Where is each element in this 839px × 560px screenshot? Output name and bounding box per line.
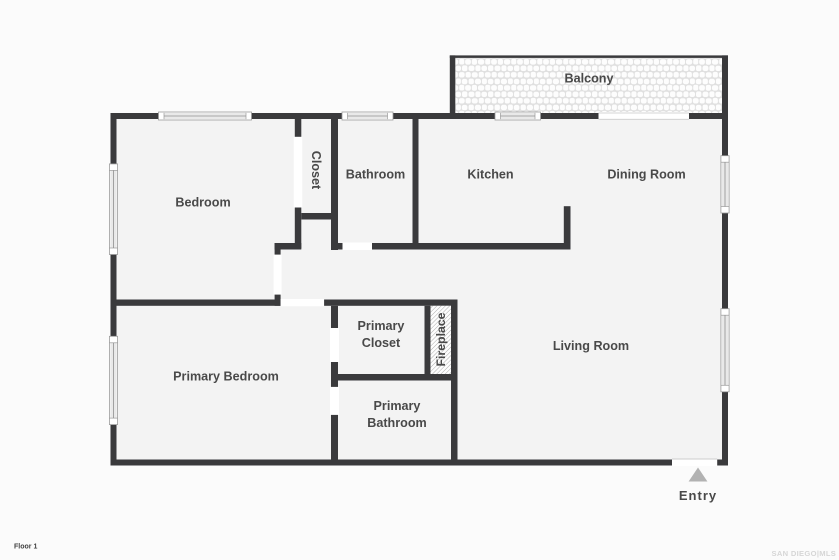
svg-text:Dining Room: Dining Room bbox=[607, 167, 685, 181]
svg-text:Entry: Entry bbox=[679, 488, 717, 503]
svg-text:Primary: Primary bbox=[374, 399, 421, 413]
svg-text:Bathroom: Bathroom bbox=[346, 167, 405, 181]
svg-text:Primary: Primary bbox=[358, 319, 405, 333]
svg-text:SAN DIEGO|MLS: SAN DIEGO|MLS bbox=[772, 549, 837, 558]
svg-text:Bedroom: Bedroom bbox=[175, 195, 230, 209]
svg-text:Primary Bedroom: Primary Bedroom bbox=[173, 369, 279, 383]
svg-text:Fireplace: Fireplace bbox=[434, 312, 448, 366]
svg-text:Floor 1: Floor 1 bbox=[14, 544, 37, 551]
svg-text:Kitchen: Kitchen bbox=[467, 167, 513, 181]
svg-text:Living Room: Living Room bbox=[553, 339, 629, 353]
svg-text:Bathroom: Bathroom bbox=[367, 416, 426, 430]
svg-text:Closet: Closet bbox=[309, 151, 323, 190]
svg-text:Balcony: Balcony bbox=[565, 71, 614, 85]
svg-text:Closet: Closet bbox=[362, 336, 401, 350]
